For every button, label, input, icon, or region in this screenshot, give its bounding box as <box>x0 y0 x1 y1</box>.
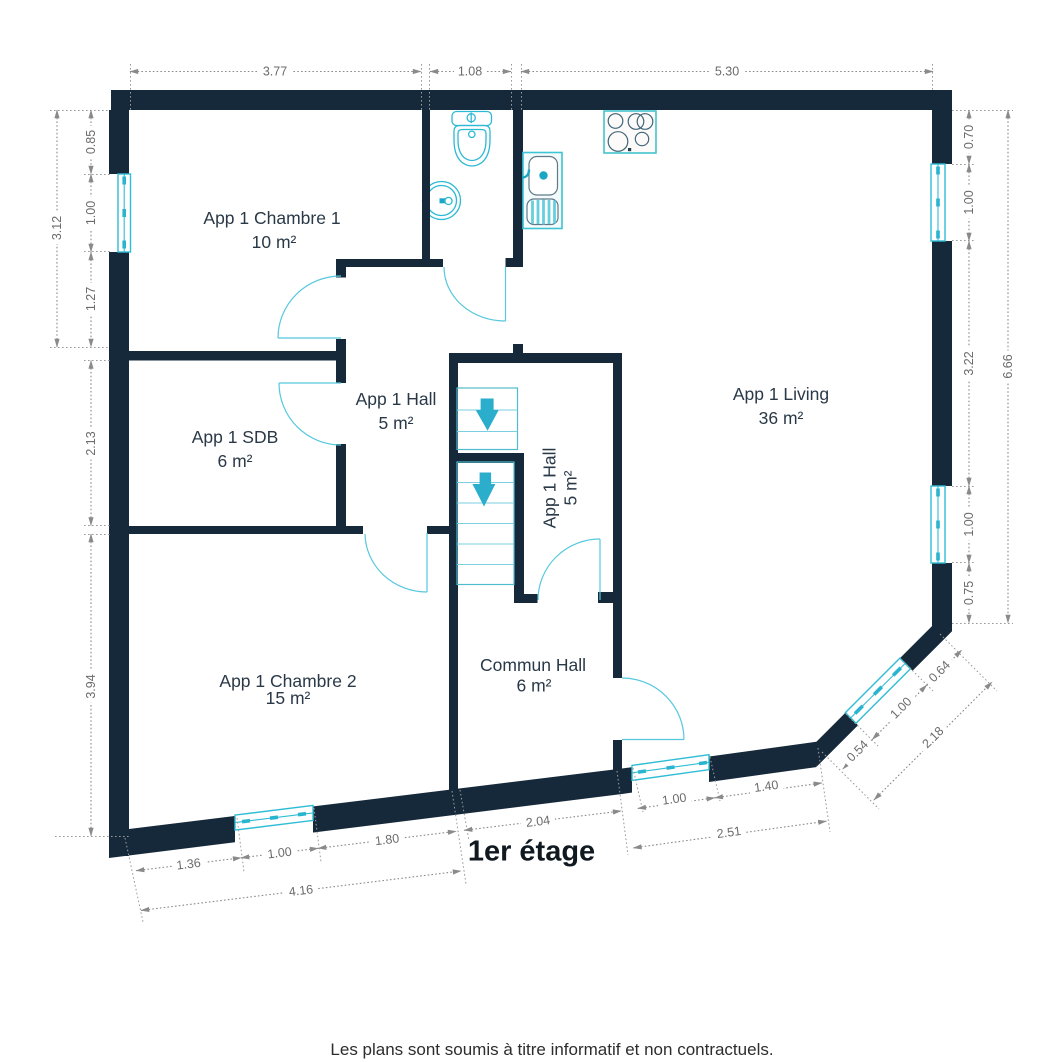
svg-text:1.00: 1.00 <box>962 190 976 214</box>
svg-text:0.85: 0.85 <box>84 130 98 154</box>
svg-text:5 m²: 5 m² <box>379 413 414 433</box>
svg-text:App 1 Living: App 1 Living <box>733 384 829 404</box>
svg-text:6 m²: 6 m² <box>517 676 552 696</box>
svg-text:Commun Hall: Commun Hall <box>480 655 586 675</box>
svg-text:15 m²: 15 m² <box>266 688 311 708</box>
svg-text:3.94: 3.94 <box>84 674 98 698</box>
svg-text:0.75: 0.75 <box>962 581 976 605</box>
svg-text:1.27: 1.27 <box>84 287 98 311</box>
svg-text:App 1 Chambre 1: App 1 Chambre 1 <box>203 208 340 228</box>
svg-text:6 m²: 6 m² <box>218 451 253 471</box>
svg-text:3.12: 3.12 <box>50 216 64 240</box>
svg-text:2.04: 2.04 <box>525 813 551 830</box>
svg-text:1.00: 1.00 <box>84 201 98 225</box>
svg-text:2.13: 2.13 <box>84 431 98 455</box>
svg-text:3.22: 3.22 <box>962 351 976 375</box>
svg-text:1.08: 1.08 <box>458 65 482 79</box>
svg-text:Les plans sont soumis à titre: Les plans sont soumis à titre informatif… <box>330 1040 773 1059</box>
svg-text:5 m²: 5 m² <box>561 470 581 505</box>
svg-text:36 m²: 36 m² <box>759 408 804 428</box>
svg-text:1.00: 1.00 <box>962 512 976 536</box>
svg-text:1.36: 1.36 <box>176 856 202 873</box>
svg-text:App 1 SDB: App 1 SDB <box>192 427 279 447</box>
svg-text:3.77: 3.77 <box>263 65 287 79</box>
svg-text:5.30: 5.30 <box>715 65 739 79</box>
svg-text:0.70: 0.70 <box>962 125 976 149</box>
svg-text:1.80: 1.80 <box>374 831 400 848</box>
svg-text:1er étage: 1er étage <box>468 836 595 868</box>
svg-text:4.16: 4.16 <box>288 882 314 899</box>
svg-text:1.00: 1.00 <box>267 845 293 862</box>
svg-text:6.66: 6.66 <box>1001 354 1015 378</box>
svg-text:10 m²: 10 m² <box>252 232 297 252</box>
svg-text:App 1 Hall: App 1 Hall <box>540 448 560 529</box>
svg-text:App 1 Hall: App 1 Hall <box>356 389 437 409</box>
